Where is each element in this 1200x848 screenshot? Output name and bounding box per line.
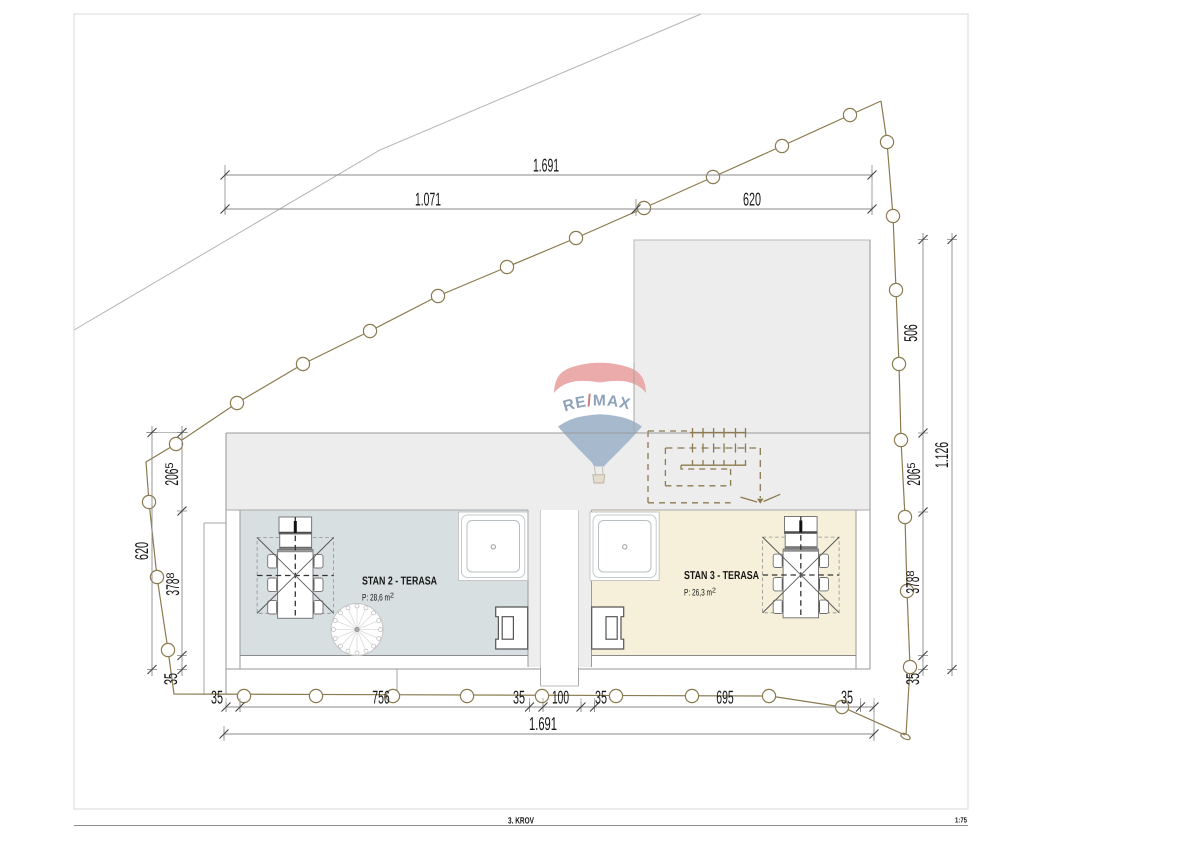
svg-text:1.691: 1.691: [529, 713, 557, 734]
svg-text:P: 28,6 m2: P: 28,6 m2: [362, 593, 394, 604]
svg-text:1.126: 1.126: [931, 442, 952, 468]
svg-text:RE/MAX: RE/MAX: [561, 391, 632, 416]
svg-text:506: 506: [900, 324, 921, 342]
svg-text:3. KROV: 3. KROV: [508, 816, 534, 826]
svg-text:35: 35: [902, 673, 923, 685]
svg-text:620: 620: [743, 189, 761, 210]
svg-text:1.071: 1.071: [415, 189, 441, 210]
svg-text:35: 35: [841, 687, 853, 708]
svg-text:3788: 3788: [162, 572, 183, 595]
svg-text:3788: 3788: [902, 570, 923, 593]
svg-text:2065: 2065: [161, 462, 182, 485]
svg-text:695: 695: [716, 687, 734, 708]
svg-text:35: 35: [211, 687, 223, 708]
svg-text:756: 756: [372, 687, 390, 708]
svg-text:35: 35: [513, 687, 525, 708]
svg-text:1.691: 1.691: [533, 155, 559, 176]
svg-text:35: 35: [595, 687, 607, 708]
svg-text:620: 620: [131, 542, 152, 560]
svg-text:100: 100: [552, 687, 569, 708]
svg-text:P: 26,3 m2: P: 26,3 m2: [684, 588, 716, 599]
svg-text:1:75: 1:75: [955, 816, 967, 825]
svg-text:STAN 3 - TERASA: STAN 3 - TERASA: [684, 570, 759, 582]
svg-text:35: 35: [160, 673, 181, 685]
svg-text:2065: 2065: [903, 462, 924, 485]
svg-text:STAN 2 - TERASA: STAN 2 - TERASA: [362, 576, 437, 588]
